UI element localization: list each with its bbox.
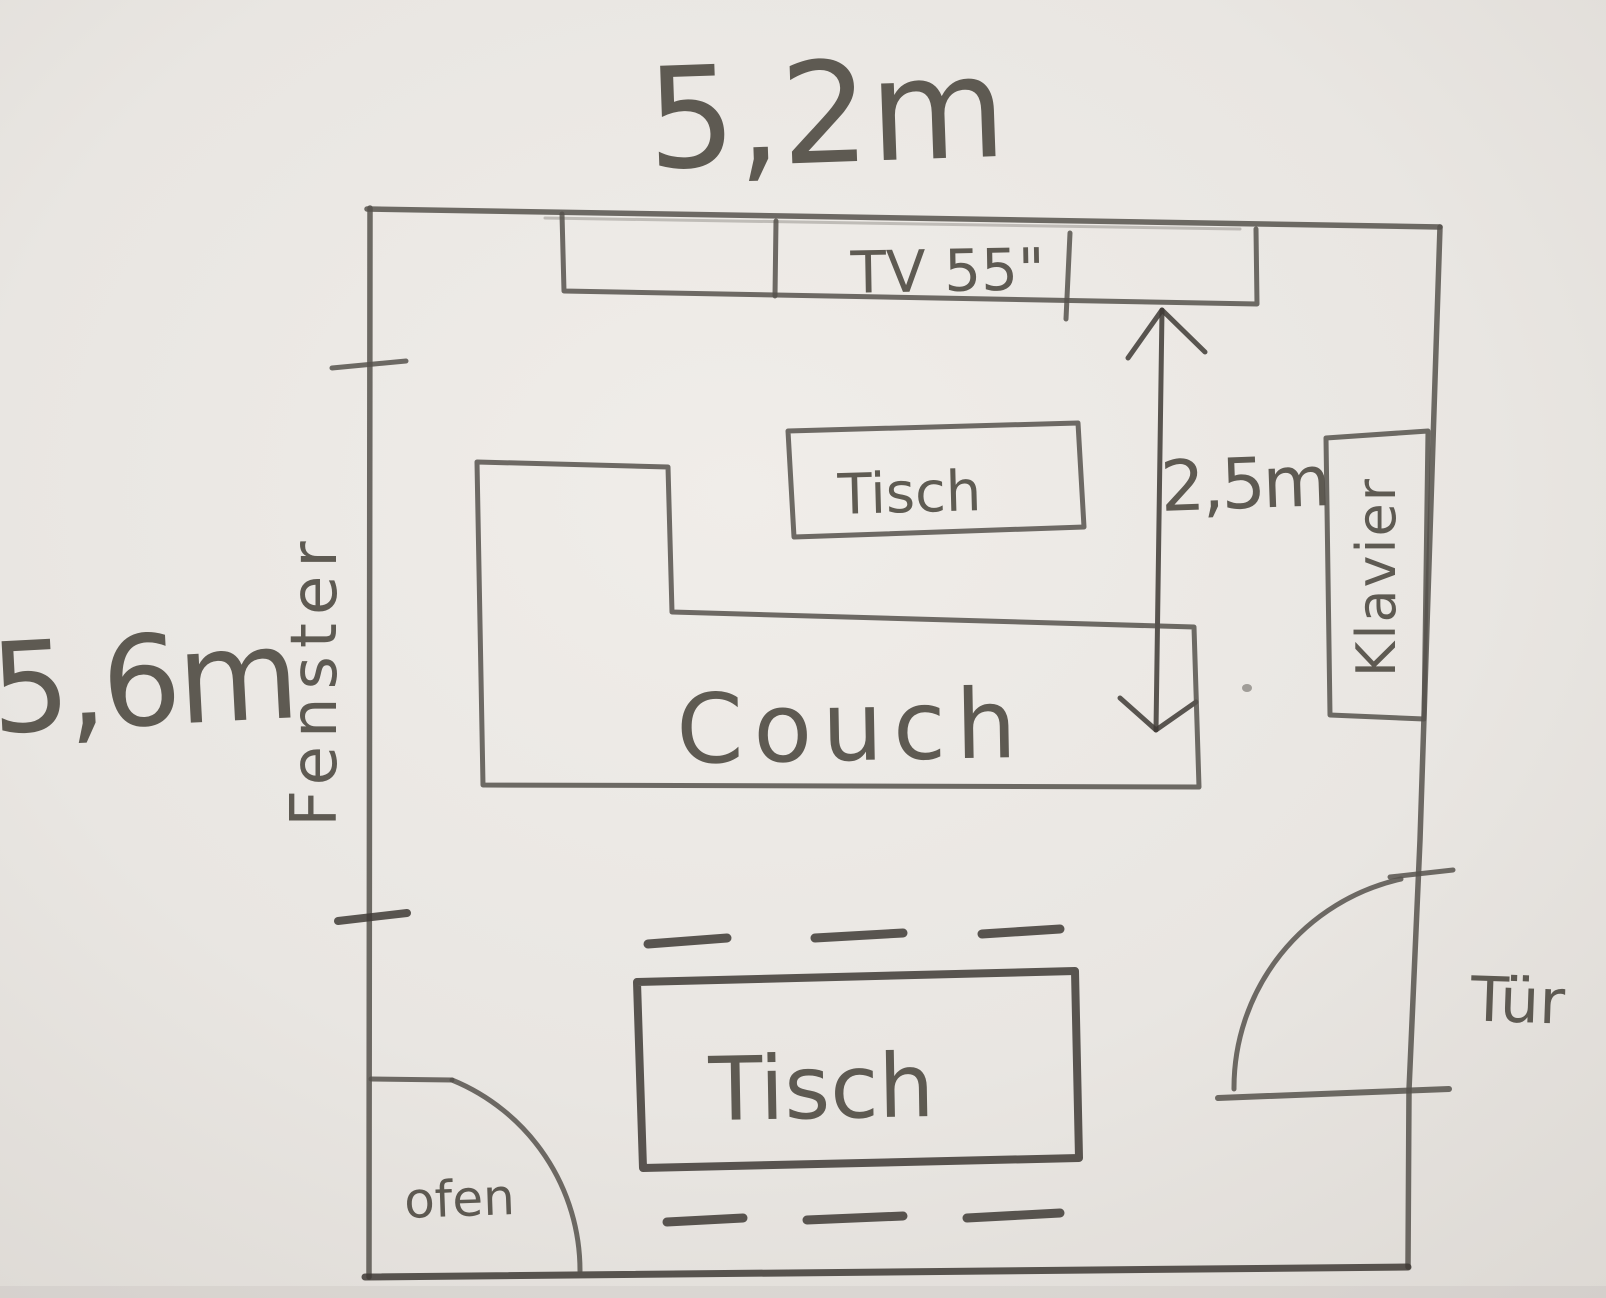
oven-top-line bbox=[371, 1079, 452, 1080]
floor-plan-canvas: Fenster TV 55" 2,5m Tisch Couch Klavier … bbox=[0, 0, 1606, 1298]
table-upper-label: Tisch bbox=[836, 459, 982, 528]
table-lower-label: Tisch bbox=[707, 1034, 935, 1141]
room-width-label: 5,2m bbox=[644, 27, 1009, 202]
room-height-label: 5,6m bbox=[0, 602, 299, 763]
chair-dash bbox=[967, 1213, 1060, 1218]
tv-cabinet-divider bbox=[775, 221, 776, 296]
tv-label: TV 55" bbox=[849, 235, 1045, 306]
chair-dash bbox=[982, 929, 1060, 934]
floor-plan-photo: Fenster TV 55" 2,5m Tisch Couch Klavier … bbox=[0, 0, 1606, 1298]
wall-left bbox=[369, 208, 370, 1277]
dimension-label-2-5m: 2,5m bbox=[1159, 440, 1329, 528]
door-label: Tür bbox=[1468, 962, 1566, 1038]
pencil-dot bbox=[1242, 684, 1252, 692]
paper-bottom-shadow bbox=[0, 1286, 1606, 1298]
chair-dash bbox=[807, 1216, 903, 1220]
chair-dash bbox=[648, 938, 727, 944]
piano-label: Klavier bbox=[1345, 477, 1408, 677]
chair-dash bbox=[667, 1218, 743, 1222]
couch-label: Couch bbox=[675, 668, 1027, 786]
chair-dash bbox=[815, 933, 903, 938]
oven-label: ofen bbox=[403, 1168, 516, 1230]
